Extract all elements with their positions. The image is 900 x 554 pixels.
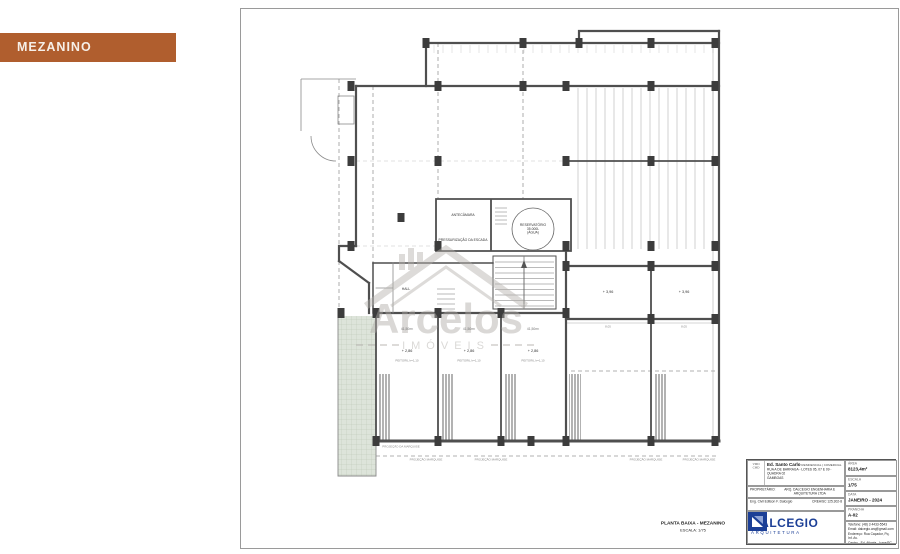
responsible-company: ARQ. DALCEGIO ENGENHARIA E ARQUITETURA L… (777, 488, 842, 496)
drawing-sheet: Arcelos IMÓVEIS ANTECÂMARA PRESSURIZAÇÃO… (240, 8, 899, 549)
project-name: Ed. Santo Carlo (767, 462, 801, 467)
project-type: RESIDENCIAL | COMERCIAL (801, 464, 841, 467)
project-address1: RUA A DE BARRAGA - LOTES 05, 07 E 09 - Q… (767, 468, 842, 476)
label-unit1-level: + 2,86 (402, 349, 413, 353)
responsible-name: Eng. Civil Edilson F. Dalcegio (750, 500, 792, 504)
brand-cell: DALCEGIO ARQUITETURA (747, 511, 845, 544)
title-block: VMD CMD Ed. Santo Carlo RESIDENCIAL | CO… (746, 459, 896, 545)
brand-subtitle: ARQUITETURA (751, 530, 841, 535)
label-pressurizacao: PRESSURIZAÇÃO DA ESCADA (439, 238, 488, 242)
label-marquise-2: PROJEÇÃO MARQUISE (475, 458, 508, 461)
label-unit1-peitoril: PEITORIL h=1,10 (395, 359, 418, 362)
field-area-value: 8123,4m² (848, 466, 894, 472)
field-prancha: PRANCHA A-02 (845, 506, 897, 521)
label-unit2-level: + 2,86 (464, 349, 475, 353)
label-reservatorio: RESERVATÓRIO 35.000L (ÁGUA) (520, 223, 546, 235)
label-hall: HALL (402, 287, 410, 291)
contact-address2: Centro - Ed. Atlanta - Içara/SC (848, 541, 894, 544)
field-data-value: JANEIRO - 2024 (848, 497, 894, 503)
contact-address1: Endereço: Rua Caçador, Pq. Inf. Av. (848, 532, 894, 540)
project-logo-bottom: CMD (748, 467, 764, 471)
project-logo: VMD CMD (748, 461, 765, 485)
watermark-subtitle: IMÓVEIS (402, 339, 490, 352)
dalcegio-logo-icon (748, 512, 767, 531)
label-unit1-area: 41,50m² (401, 327, 413, 331)
label-antecamara: ANTECÂMARA (451, 213, 474, 217)
owner-row: PROPRIETÁRIO: ARQ. DALCEGIO ENGENHARIA E… (747, 486, 845, 498)
owner-label: PROPRIETÁRIO: (750, 488, 775, 492)
responsible-crea: CREA/SC 125.302-8 (812, 500, 842, 504)
label-marquise-1: PROJEÇÃO MARQUISE (410, 458, 443, 461)
brand-contact: Telefone: (48) 3 4433-5543 Email: dalceg… (845, 521, 897, 544)
sheet-caption-title: PLANTA BAIXA - MEZANINO (661, 520, 725, 526)
contact-phone: Telefone: (48) 3 4433-5543 (848, 523, 894, 527)
label-marquise-3: PROJEÇÃO MARQUISE (630, 458, 663, 461)
field-prancha-value: A-02 (848, 512, 894, 518)
plan-hatch-regions (338, 45, 718, 476)
label-right2-level: + 3,96 (679, 290, 690, 294)
label-right2-dim: 8,05 (681, 325, 687, 328)
label-marquise-4: PROJEÇÃO MARQUISE (683, 458, 716, 461)
label-unit2-peitoril: PEITORIL h=1,10 (457, 359, 480, 362)
label-right1-dim: 8,05 (605, 325, 611, 328)
label-right1-level: + 3,96 (603, 290, 614, 294)
field-escala-value: 1/75 (848, 482, 894, 488)
watermark-name: Arcelos (369, 295, 523, 342)
label-reservatorio-l3: (ÁGUA) (520, 231, 546, 235)
responsible-row: Eng. Civil Edilson F. Dalcegio CREA/SC 1… (747, 498, 845, 511)
field-escala: ESCALA 1/75 (845, 476, 897, 491)
mezanino-tag: MEZANINO (0, 33, 176, 62)
label-unit3-peitoril: PEITORIL h=1,10 (521, 359, 544, 362)
label-unit3-area: 41,50m² (527, 327, 539, 331)
field-data: DATA JANEIRO - 2024 (845, 491, 897, 506)
sheet-caption-scale: ESCALA: 1/75 (680, 528, 706, 533)
label-marquise-left: PROJEÇÃO DA MARQUISE (382, 445, 419, 448)
field-area: ÁREA 8123,4m² (845, 460, 897, 476)
contact-email: Email: dalcegio.arq@gmail.com (848, 528, 894, 532)
label-unit3-level: + 2,86 (528, 349, 539, 353)
label-unit2-area: 41,50m² (463, 327, 475, 331)
project-cell: VMD CMD Ed. Santo Carlo RESIDENCIAL | CO… (747, 460, 845, 486)
project-address2: GAMBOAS (767, 476, 842, 480)
